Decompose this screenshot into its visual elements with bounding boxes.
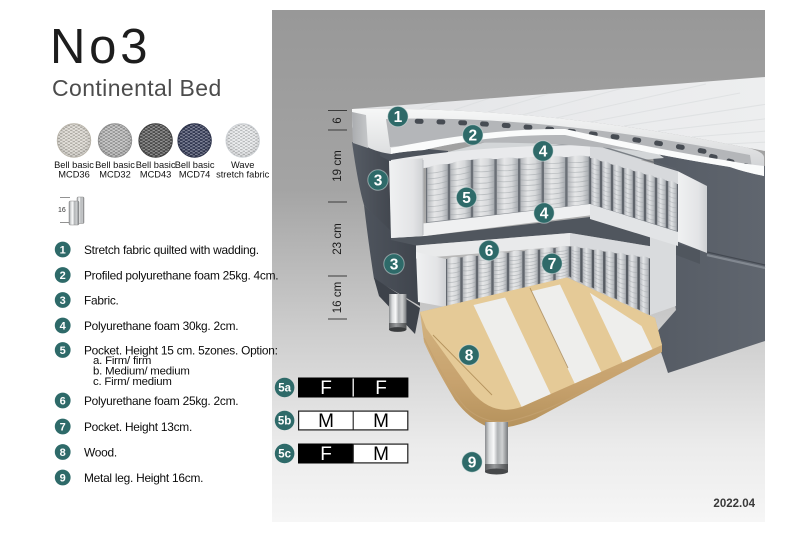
svg-text:stretch fabric: stretch fabric <box>216 170 270 180</box>
svg-text:Bell basic: Bell basic <box>54 160 94 170</box>
svg-text:No3: No3 <box>50 20 151 74</box>
svg-text:4: 4 <box>539 144 548 161</box>
svg-text:9: 9 <box>60 472 66 484</box>
svg-text:5: 5 <box>60 345 66 357</box>
svg-text:F: F <box>320 378 332 399</box>
svg-text:F: F <box>375 378 387 399</box>
svg-text:Bell basic: Bell basic <box>136 160 176 170</box>
svg-text:23 cm: 23 cm <box>331 223 344 255</box>
svg-text:Wood.: Wood. <box>84 446 117 460</box>
svg-text:2: 2 <box>60 270 66 282</box>
svg-text:16 cm: 16 cm <box>331 282 344 314</box>
svg-text:1: 1 <box>60 244 66 256</box>
svg-text:5b: 5b <box>278 416 291 428</box>
svg-text:4: 4 <box>540 206 549 223</box>
svg-text:MCD32: MCD32 <box>99 170 131 180</box>
svg-text:2022.04: 2022.04 <box>713 498 755 510</box>
svg-text:7: 7 <box>548 256 557 273</box>
svg-text:16: 16 <box>58 207 66 214</box>
svg-text:M: M <box>373 444 389 465</box>
svg-text:Polyurethane foam 30kg. 2cm.: Polyurethane foam 30kg. 2cm. <box>84 319 238 333</box>
svg-text:5c: 5c <box>278 449 291 461</box>
svg-text:3: 3 <box>390 257 399 274</box>
svg-text:6: 6 <box>331 117 344 123</box>
svg-text:F: F <box>320 444 332 465</box>
svg-text:8: 8 <box>60 447 66 459</box>
svg-text:5a: 5a <box>278 383 291 395</box>
svg-text:Bell basic: Bell basic <box>95 160 135 170</box>
svg-text:Metal leg. Height 16cm.: Metal leg. Height 16cm. <box>84 471 203 485</box>
svg-text:Fabric.: Fabric. <box>84 294 119 308</box>
svg-text:MCD43: MCD43 <box>140 170 172 180</box>
svg-text:4: 4 <box>60 320 67 332</box>
svg-text:Stretch fabric quilted with wa: Stretch fabric quilted with wadding. <box>84 243 259 257</box>
svg-text:7: 7 <box>60 421 66 433</box>
svg-text:8: 8 <box>465 348 474 365</box>
svg-text:M: M <box>318 411 334 432</box>
svg-text:Bell basic: Bell basic <box>175 160 215 170</box>
svg-text:6: 6 <box>60 395 66 407</box>
svg-text:MCD74: MCD74 <box>179 170 211 180</box>
svg-text:Wave: Wave <box>231 160 254 170</box>
svg-text:Polyurethane foam 25kg. 2cm.: Polyurethane foam 25kg. 2cm. <box>84 394 238 408</box>
svg-text:Pocket. Height 13cm.: Pocket. Height 13cm. <box>84 420 192 434</box>
svg-text:MCD36: MCD36 <box>58 170 90 180</box>
svg-text:Continental Bed: Continental Bed <box>52 75 222 101</box>
svg-text:1: 1 <box>394 109 403 126</box>
svg-text:3: 3 <box>60 295 66 307</box>
svg-text:M: M <box>373 411 389 432</box>
svg-text:c. Firm/ medium: c. Firm/ medium <box>93 376 172 388</box>
svg-text:6: 6 <box>485 243 494 260</box>
svg-text:Profiled polyurethane foam 25k: Profiled polyurethane foam 25kg. 4cm. <box>84 269 278 283</box>
svg-text:9: 9 <box>468 455 477 472</box>
svg-text:3: 3 <box>374 173 383 190</box>
svg-text:19 cm: 19 cm <box>331 150 344 182</box>
svg-text:5: 5 <box>462 190 471 207</box>
svg-text:2: 2 <box>468 127 477 144</box>
